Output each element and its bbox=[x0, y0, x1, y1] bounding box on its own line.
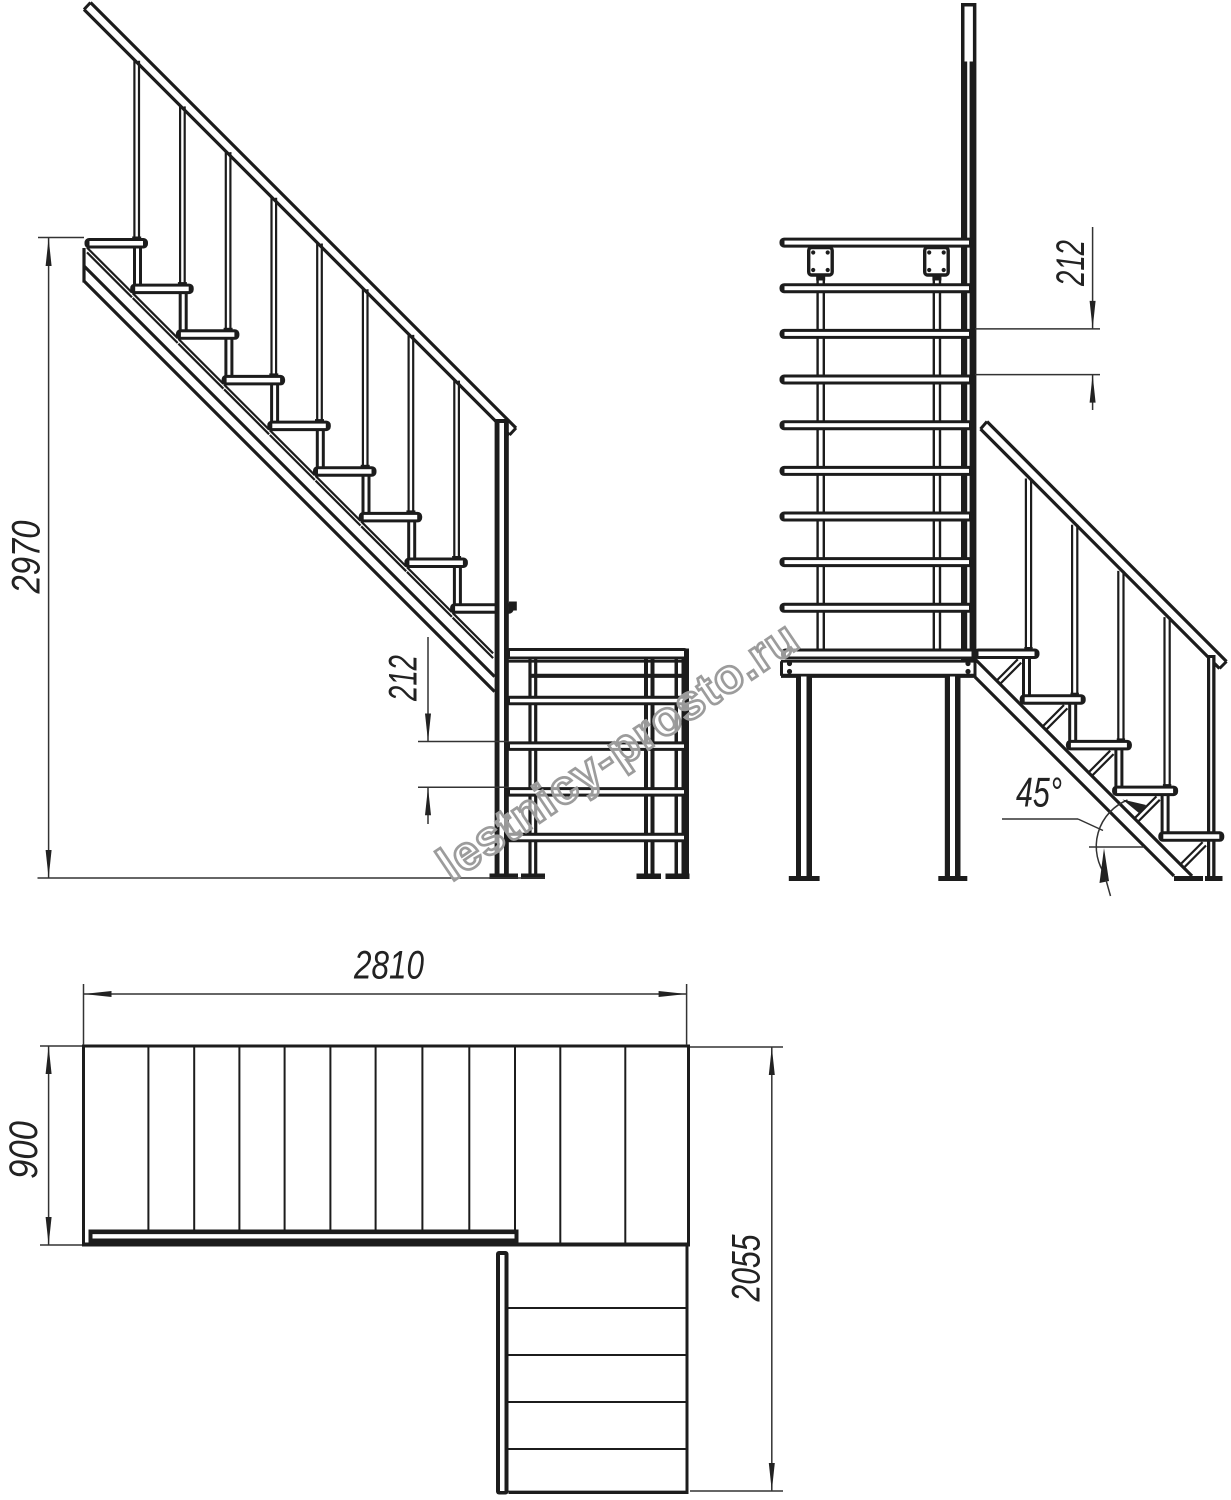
svg-text:212: 212 bbox=[1049, 240, 1093, 287]
svg-text:2810: 2810 bbox=[353, 944, 424, 988]
svg-text:2970: 2970 bbox=[5, 521, 49, 595]
svg-text:212: 212 bbox=[382, 655, 426, 702]
svg-text:900: 900 bbox=[2, 1121, 46, 1179]
svg-text:45°: 45° bbox=[1016, 769, 1062, 816]
svg-text:2055: 2055 bbox=[725, 1234, 769, 1302]
